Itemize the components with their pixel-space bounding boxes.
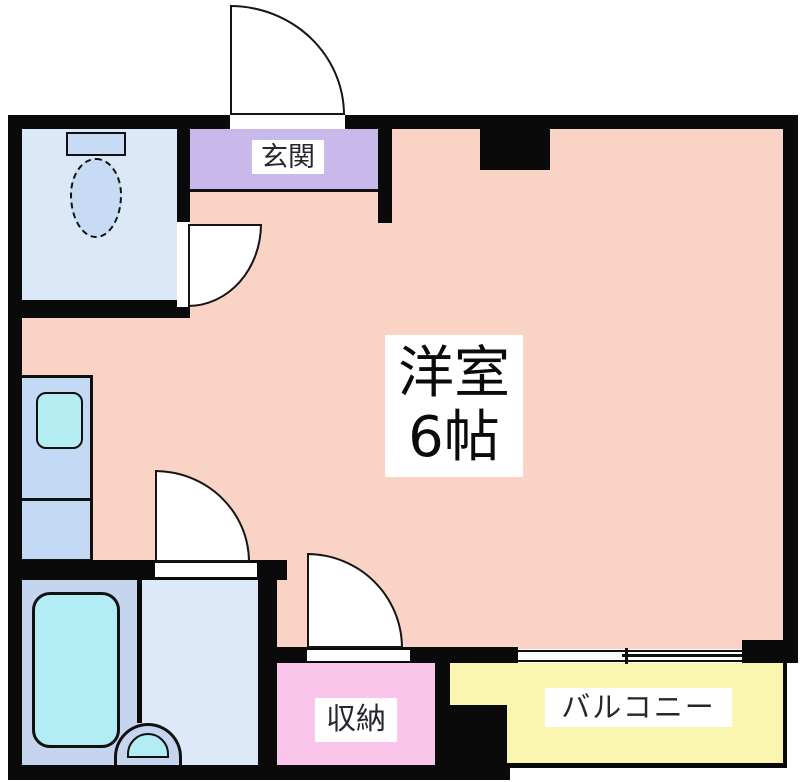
- sliding-window-sash: [622, 654, 742, 657]
- label-balcony: バルコニー: [545, 688, 732, 727]
- bathroom-divider-wall: [137, 577, 142, 723]
- sliding-window-track-bottom: [518, 660, 742, 662]
- main-room-name: 洋室: [398, 346, 510, 402]
- sliding-window-balcony: [518, 649, 742, 663]
- sliding-window-center-tick: [625, 648, 628, 664]
- kitchen-counter: [15, 375, 93, 562]
- wall-pillar: [480, 129, 550, 170]
- wall-washroom-right: [258, 560, 277, 780]
- washroom-threshold: [155, 563, 257, 577]
- storage-threshold: [307, 650, 410, 661]
- floor-plan: 洋室 6帖 玄関 収納 バルコニー: [0, 0, 800, 782]
- balcony-railing-bottom: [507, 763, 787, 768]
- toilet-tank: [66, 132, 126, 156]
- kitchen-sink: [36, 392, 83, 449]
- room-balcony-notch: [450, 663, 507, 705]
- wall-outer-left: [8, 115, 22, 780]
- wall-outer-bottom: [8, 765, 510, 780]
- wall-outer-right: [783, 115, 798, 663]
- kitchen-counter-divider: [18, 498, 90, 501]
- entrance-door-swing: [230, 5, 345, 115]
- wall-toilet-bottom: [8, 300, 190, 318]
- main-room-size: 6帖: [408, 410, 500, 466]
- wall-storage-right: [435, 663, 450, 780]
- sliding-window-track-top: [518, 650, 742, 652]
- bathtub: [32, 592, 120, 748]
- entrance-threshold: [230, 115, 345, 129]
- wall-entrance-stub: [378, 129, 392, 223]
- wall-toilet-right: [177, 129, 190, 222]
- label-storage: 収納: [315, 698, 397, 742]
- label-main-room: 洋室 6帖: [385, 335, 523, 477]
- balcony-railing-right: [783, 662, 787, 768]
- wall-outer-top: [8, 115, 798, 129]
- label-entrance: 玄関: [252, 140, 324, 174]
